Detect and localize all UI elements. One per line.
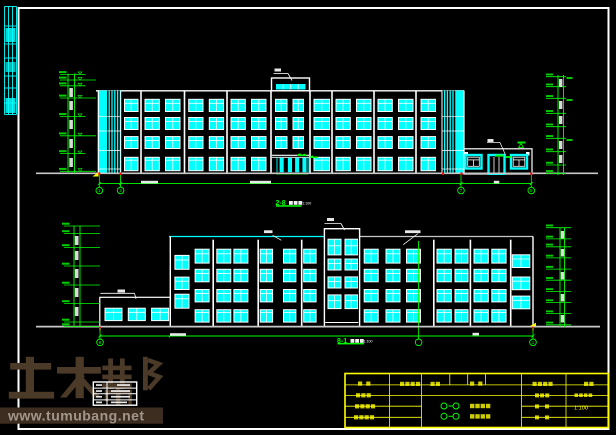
svg-text:1:100: 1:100 — [364, 339, 373, 343]
svg-text:1:100: 1:100 — [302, 201, 311, 205]
svg-text:www.tumubang.net: www.tumubang.net — [7, 408, 145, 424]
svg-text:1:100: 1:100 — [574, 405, 588, 411]
